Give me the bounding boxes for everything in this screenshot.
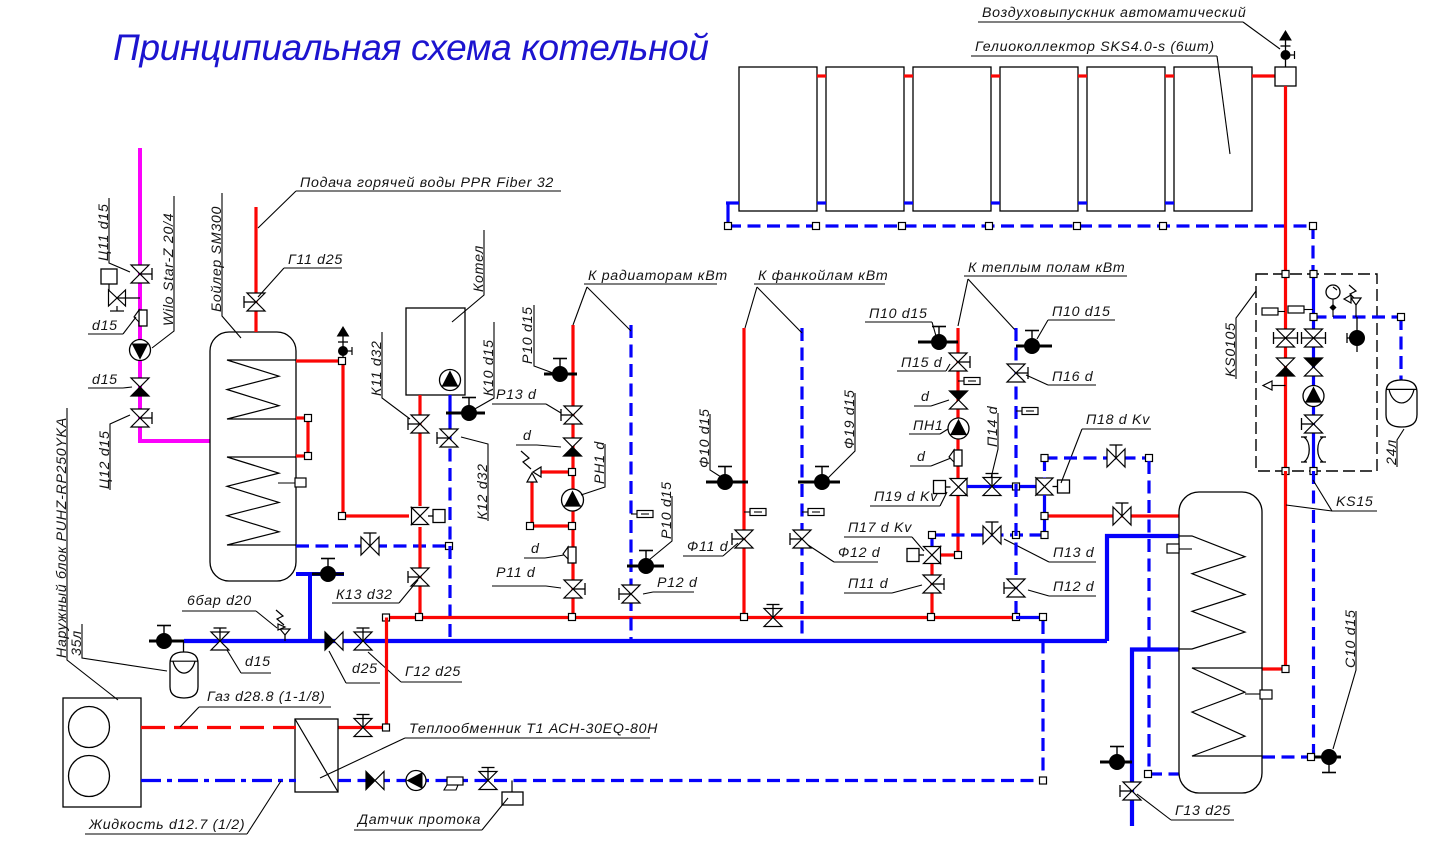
svg-text:Р10 d15: Р10 d15: [659, 481, 675, 539]
svg-text:Ф19 d15: Ф19 d15: [842, 389, 858, 449]
svg-text:Ф11 d: Ф11 d: [687, 539, 729, 555]
svg-text:Ф10 d15: Ф10 d15: [697, 408, 713, 468]
svg-text:Р13 d: Р13 d: [496, 387, 537, 403]
svg-text:d15: d15: [92, 318, 118, 334]
svg-text:П16 d: П16 d: [1052, 369, 1094, 385]
svg-text:d: d: [917, 449, 926, 465]
svg-text:Wilo Star-Z 20/4: Wilo Star-Z 20/4: [161, 213, 177, 326]
svg-text:KS0105: KS0105: [1223, 322, 1239, 377]
svg-text:П10 d15: П10 d15: [1052, 304, 1111, 320]
svg-text:6бар d20: 6бар d20: [187, 593, 252, 609]
svg-text:Ц11 d15: Ц11 d15: [96, 203, 112, 261]
svg-text:d15: d15: [245, 654, 271, 670]
svg-text:Ц12 d15: Ц12 d15: [97, 430, 113, 489]
svg-text:Гелиоколлектор SKS4.0-s (6шт): Гелиоколлектор SKS4.0-s (6шт): [975, 39, 1215, 55]
svg-text:П18 d Kv: П18 d Kv: [1086, 412, 1150, 428]
svg-text:Р12 d: Р12 d: [657, 575, 698, 591]
svg-text:К13 d32: К13 d32: [336, 587, 393, 603]
svg-text:Теплообменник Т1 АСН-30EQ-80Н: Теплообменник Т1 АСН-30EQ-80Н: [409, 721, 658, 737]
svg-text:Г11 d25: Г11 d25: [288, 252, 343, 268]
svg-text:Г13 d25: Г13 d25: [1175, 803, 1231, 819]
svg-text:С10 d15: С10 d15: [1343, 609, 1359, 668]
svg-text:П11 d: П11 d: [848, 576, 889, 592]
svg-text:П13 d: П13 d: [1053, 545, 1095, 561]
svg-text:Подача горячей воды PPR Fiber: Подача горячей воды PPR Fiber 32: [300, 175, 554, 191]
svg-text:KS15: KS15: [1336, 494, 1374, 510]
svg-text:d: d: [531, 541, 540, 557]
svg-text:Р11 d: Р11 d: [496, 565, 536, 581]
svg-text:d25: d25: [352, 661, 378, 677]
svg-text:Ф12 d: Ф12 d: [838, 545, 881, 561]
svg-text:Бойлер SM300: Бойлер SM300: [209, 206, 225, 312]
svg-text:РН1 d: РН1 d: [592, 441, 608, 484]
svg-text:П15 d: П15 d: [901, 355, 943, 371]
svg-text:Газ d28.8 (1-1/8): Газ d28.8 (1-1/8): [207, 689, 326, 705]
svg-text:К фанкойлам кВт: К фанкойлам кВт: [758, 268, 888, 284]
svg-text:Г12 d25: Г12 d25: [405, 664, 461, 680]
svg-text:24л: 24л: [1384, 439, 1400, 466]
svg-text:d: d: [921, 389, 930, 405]
svg-text:d: d: [523, 428, 532, 444]
svg-text:К12 d32: К12 d32: [475, 463, 491, 520]
svg-text:П10 d15: П10 d15: [869, 306, 928, 322]
svg-text:К10 d15: К10 d15: [481, 339, 497, 396]
svg-text:П17 d Kv: П17 d Kv: [848, 520, 912, 536]
svg-text:Датчик протока: Датчик протока: [356, 812, 481, 828]
svg-text:ПН1: ПН1: [913, 418, 944, 434]
svg-text:К11 d32: К11 d32: [369, 340, 385, 396]
svg-text:К теплым полам кВт: К теплым полам кВт: [968, 260, 1125, 276]
svg-text:Принципиальная схема котельной: Принципиальная схема котельной: [113, 27, 709, 68]
svg-text:Воздуховыпускник автоматически: Воздуховыпускник автоматический: [982, 5, 1246, 21]
svg-text:П14 d: П14 d: [985, 405, 1001, 447]
svg-text:Жидкость d12.7 (1/2): Жидкость d12.7 (1/2): [88, 817, 245, 833]
svg-text:35л: 35л: [69, 630, 85, 656]
svg-text:d15: d15: [92, 372, 118, 388]
svg-text:П19 d Kv: П19 d Kv: [874, 489, 938, 505]
svg-text:П12 d: П12 d: [1053, 579, 1095, 595]
svg-text:Котел: Котел: [471, 245, 487, 292]
svg-text:Наружный блок PUHZ-RP250YKA: Наружный блок PUHZ-RP250YKA: [54, 417, 70, 658]
svg-text:К радиаторам кВт: К радиаторам кВт: [588, 268, 728, 284]
